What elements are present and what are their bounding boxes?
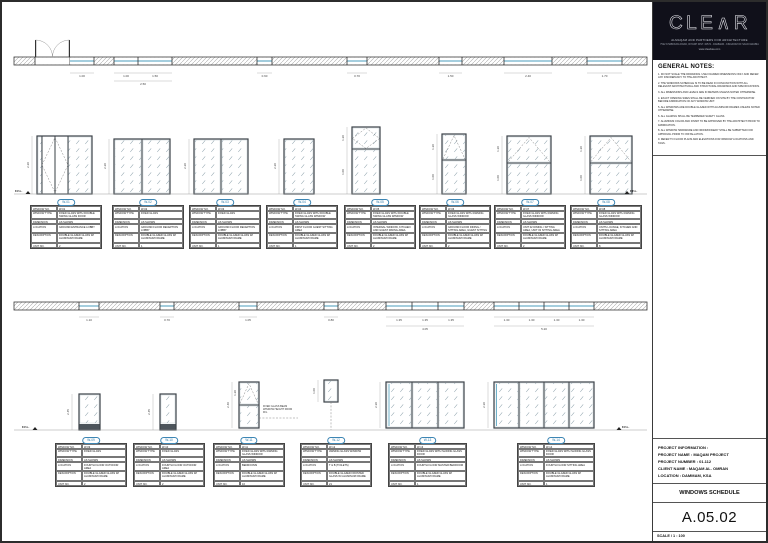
window-tag: W-13 [419,437,437,444]
project-location: LOCATION : DAMMAM, KSA [658,473,761,478]
schedule-row-value: DOUBLE GLAZED GLASS W/ ALUMINUM FRAME [415,471,466,481]
project-name: PROJECT NAME : MAQAM PROJECT [658,452,761,457]
project-info: PROJECT INFORMATION : PROJECT NAME : MAQ… [653,438,766,482]
window-schedule-table: W-04WINDOW NO.W-04WINDOW TYPEFIXED GLASS… [266,205,338,249]
window-schedule-table: W-14WINDOW NO.W-14WINDOW TYPEFIXED GLASS… [517,443,595,487]
schedule-row-value: FOURTH FLOOR OUTDOOR AREA [82,462,126,471]
schedule-row-value: DOUBLE GLAZED GLASS W/ ALUMINUM FRAME [57,233,101,243]
schedule-row-value: FIXED GLASS WITH DOUBLE SWING GLASS WIND… [371,211,415,220]
schedule-row-label: WINDOW TYPE [495,211,521,220]
schedule-row-label: DESCRIPTION [518,471,544,481]
title-block-spacer [653,156,766,438]
schedule-row-value: 1 [415,481,466,486]
general-note: 1. DO NOT SCALE THE DRAWINGS. USE FIGURE… [658,73,761,80]
schedule-row-label: LOCATION [267,224,293,233]
schedule-row-value: FOURTH FLOOR OUTDOOR AREA [160,462,204,471]
general-note: 3. ALL DIMENSIONS AND LEVELS ARE IN METE… [658,91,761,94]
schedule-row-value: FIXED GLASS [216,211,260,220]
schedule-row-label: DESCRIPTION [301,471,327,481]
schedule-row-value: 2 [160,481,204,486]
window-tag: W-14 [547,437,565,444]
firm-name: ALMAQAM AND PARTNERS FOR ARCHITECTURE [671,38,748,42]
schedule-row-label: DESCRIPTION [134,471,160,481]
schedule-row-label: DESCRIPTION [345,233,371,243]
window-schedule-table: W-13WINDOW NO.W-13WINDOW TYPEFIXED GLASS… [388,443,467,487]
schedule-row-value: UNITS LOUNGE, KITCHEN AND SITTING AREA [597,224,641,233]
schedule-row-value: 2 [371,243,415,248]
schedule-row-label: DESCRIPTION [267,233,293,243]
title-block: CLE∧R ALMAQAM AND PARTNERS FOR ARCHITECT… [652,2,766,541]
window-tag: W-01 [57,199,75,206]
general-note: 2. THE WINDOWS SCHEDULE IS TO BE READ IN… [658,82,761,89]
schedule-row-label: DESCRIPTION [56,471,82,481]
schedule-row-label: LOCATION [301,462,327,471]
schedule-row-label: UNIT NO. [267,243,293,248]
window-tag: W-12 [327,437,345,444]
general-notes-heading: GENERAL NOTES: [658,64,761,70]
general-note: 9. REFER TO FLOOR PLANS AND ELEVATIONS F… [658,138,761,145]
schedule-row-value: UNIT 02 DINING / SITTING AREA, UNIT 03 S… [521,224,565,233]
schedule-row-value: 16 [240,481,284,486]
schedule-row-value: DOUBLE GLAZED GLASS W/ ALUMINUM FRAME [293,233,337,243]
schedule-row-value: FIXED GLASS WITH DOUBLE SWING GLASS DOOR [57,211,101,220]
schedule-row-label: LOCATION [214,462,240,471]
firm-address: 7522 KHABOURA ROAD, RIYADH DIST. 32574 -… [660,43,759,46]
schedule-row-value: 2 [82,481,126,486]
schedule-row-label: DESCRIPTION [214,471,240,481]
window-tag: W-11 [240,437,257,444]
schedule-row-value: DOUBLE GLAZED GLASS W/ ALUMINUM FRAME [446,233,490,243]
schedule-row-label: WINDOW TYPE [134,449,160,458]
schedule-row-label: UNIT NO. [301,481,327,486]
window-tag: W-05 [371,199,389,206]
schedule-row-value: FIXED GLASS [82,449,126,458]
schedule-row-label: UNIT NO. [113,243,139,248]
schedule-row-label: WINDOW TYPE [113,211,139,220]
window-schedule-table: W-10WINDOW NO.W-10WINDOW TYPEFIXED GLASS… [133,443,205,487]
window-tag: W-07 [521,199,539,206]
window-tag: W-10 [160,437,178,444]
schedule-row-label: DESCRIPTION [389,471,415,481]
general-note: 6. ALL GLAZING SHALL BE TEMPERED SAFETY … [658,115,761,118]
schedule-row-value: 2 [57,243,101,248]
window-schedule-table: W-12WINDOW NO.W-12WINDOW TYPEAWNING GLAS… [300,443,372,487]
schedule-row-value: FIRST FLOOR GUEST SITTING AREA [293,224,337,233]
schedule-row-label: LOCATION [134,462,160,471]
schedule-row-value: 1 [544,481,594,486]
schedule-row-value: GROUND ENTRANCE LOBBY [57,224,101,233]
schedule-row-label: UNIT NO. [518,481,544,486]
schedule-row-value: DOUBLE GLAZED GLASS W/ ALUMINUM FRAME [371,233,415,243]
general-note: 4. EXACT OPENING SIZES SHALL BE VERIFIED… [658,97,761,104]
window-tag: W-08 [597,199,615,206]
schedule-row-label: WINDOW TYPE [571,211,597,220]
schedule-row-value: 1 [139,243,183,248]
firm-website: www.clearksa.com [699,48,720,51]
svg-text:CLE∧R: CLE∧R [668,13,750,34]
project-info-heading: PROJECT INFORMATION : [658,445,761,450]
window-tag: W-03 [216,199,234,206]
schedule-row-value: FIXED GLASS WITH AWNING GLASS WINDOW [240,449,284,458]
schedule-row-label: UNIT NO. [571,243,597,248]
window-schedule-table: W-02WINDOW NO.W-02WINDOW TYPEFIXED GLASS… [112,205,184,249]
schedule-row-value: DOUBLE GLAZED FROSTED GLASS W/ ALUMINUM … [327,471,371,481]
schedule-row-label: UNIT NO. [134,481,160,486]
schedule-row-value: 21 [327,481,371,486]
schedule-row-label: WINDOW TYPE [190,211,216,220]
schedule-row-label: LOCATION [190,224,216,233]
client-name: CLIENT NAME : MAQAM AL. OMRAN [658,466,761,471]
schedule-row-value: 2 [521,243,565,248]
schedule-row-label: WINDOW TYPE [267,211,293,220]
schedule-row-label: UNIT NO. [56,481,82,486]
schedule-row-label: DESCRIPTION [571,233,597,243]
window-schedule-table: W-08WINDOW NO.W-08WINDOW TYPEFIXED GLASS… [570,205,642,249]
schedule-row-value: FIXED GLASS WITH AWNING GLASS WINDOW [521,211,565,220]
general-note: 8. ALL WINDOW HARDWARE AND IRONMONGERY S… [658,129,761,136]
schedule-row-label: DESCRIPTION [420,233,446,243]
window-schedule-table: W-01WINDOW NO.W-01WINDOW TYPEFIXED GLASS… [30,205,102,249]
project-number: PROJECT NUMBER : 01.112 [658,459,761,464]
schedule-row-value: FIXED GLASS [139,211,183,220]
schedule-row-value: FIXED GLASS WITH SLIDING GLASS DOOR [544,449,594,458]
schedule-row-label: LOCATION [56,462,82,471]
schedule-row-label: DESCRIPTION [190,233,216,243]
schedule-row-value: GROUND FLOOR RECEPTION LOBBY [139,224,183,233]
schedule-row-label: UNIT NO. [389,481,415,486]
schedule-row-value: DOUBLE GLAZED GLASS W/ ALUMINUM FRAME [544,471,594,481]
window-tag: W-09 [82,437,100,444]
schedule-row-value: GROUND FLOOR RECEPTION LOBBY [216,224,260,233]
schedule-row-label: LOCATION [518,462,544,471]
window-schedule-table: W-05WINDOW NO.W-05WINDOW TYPEFIXED GLASS… [344,205,416,249]
schedule-row-value: FIXED GLASS WITH AWNING GLASS WINDOW [446,211,490,220]
schedule-row-label: DESCRIPTION [495,233,521,243]
schedule-row-label: LOCATION [389,462,415,471]
schedule-row-value: FIXED GLASS [160,449,204,458]
window-tag: W-06 [446,199,464,206]
schedule-row-value: FIXED GLASS WITH DOUBLE SWING GLASS WIND… [293,211,337,220]
general-notes: GENERAL NOTES: 1. DO NOT SCALE THE DRAWI… [653,60,766,156]
schedule-row-value: AWNING GLASS WINDOW [327,449,371,458]
schedule-row-value: DOUBLE GLAZED GLASS W/ ALUMINUM FRAME [160,471,204,481]
schedule-row-value: GROUND FLOOR DINING / SITTING AREA, GUES… [446,224,490,233]
schedule-row-value: DOUBLE GLAZED GLASS W/ ALUMINUM FRAME [216,233,260,243]
schedule-row-value: FOURTH FLOOR MASTER BEDROOM [415,462,466,471]
schedule-row-label: LOCATION [420,224,446,233]
window-schedule-table: W-03WINDOW NO.W-03WINDOW TYPEFIXED GLASS… [189,205,261,249]
window-schedule-table: W-11WINDOW NO.W-11WINDOW TYPEFIXED GLASS… [213,443,285,487]
schedule-row-label: UNIT NO. [31,243,57,248]
schedule-row-label: UNIT NO. [345,243,371,248]
schedule-row-value: DOUBLE GLAZED GLASS W/ ALUMINUM FRAME [240,471,284,481]
schedule-row-label: WINDOW TYPE [31,211,57,220]
schedule-row-value: FIXED GLASS WITH AWNING GLASS WINDOW [597,211,641,220]
schedule-row-value: DOUBLE GLAZED GLASS W/ ALUMINUM FRAME [139,233,183,243]
window-schedule-table: W-07WINDOW NO.W-07WINDOW TYPEFIXED GLASS… [494,205,566,249]
schedule-row-label: LOCATION [571,224,597,233]
general-note: 5. ALL WINDOWS ARE DOUBLE GLAZED WITH AL… [658,106,761,113]
schedule-row-value: 8 [597,243,641,248]
schedule-row-label: UNIT NO. [190,243,216,248]
schedule-row-label: UNIT NO. [495,243,521,248]
logo-box: CLE∧R ALMAQAM AND PARTNERS FOR ARCHITECT… [653,2,766,60]
schedule-row-label: LOCATION [113,224,139,233]
clear-logo: CLE∧R [658,11,762,35]
schedule-row-value: DOUBLE GLAZED GLASS W/ ALUMINUM FRAME [82,471,126,481]
schedule-row-label: WINDOW TYPE [389,449,415,458]
general-note: 7. ALUMINUM COLOR AND FINISH TO BE APPRO… [658,120,761,127]
schedule-row-label: WINDOW TYPE [420,211,446,220]
schedule-row-value: 1 [293,243,337,248]
schedule-row-value: DOUBLE GLAZED GLASS W/ ALUMINUM FRAME [597,233,641,243]
schedule-row-value: 1 [216,243,260,248]
schedule-row-value: 2 [446,243,490,248]
window-tag: W-04 [293,199,311,206]
sheet-title: WINDOWS SCHEDULE [653,483,766,502]
schedule-row-value: DOUBLE GLAZED GLASS W/ ALUMINUM FRAME [521,233,565,243]
schedule-row-value: BEDROOMS [240,462,284,471]
schedule-row-label: WINDOW TYPE [214,449,240,458]
drawing-sheet: 1.00 1.00 1.50 2.50 0.60 0.70 1.50 2.40 … [0,0,768,543]
window-tag: W-02 [139,199,157,206]
schedule-row-label: DESCRIPTION [31,233,57,243]
schedule-row-value: INTERNAL WINDOW, KITCHEN AND GUEST DININ… [371,224,415,233]
schedule-row-value: FIXED GLASS WITH SLIDING GLASS DOOR [415,449,466,458]
window-schedule-table: W-06WINDOW NO.W-06WINDOW TYPEFIXED GLASS… [419,205,491,249]
window-schedule-table: W-09WINDOW NO.W-09WINDOW TYPEFIXED GLASS… [55,443,127,487]
sheet-number: A.05.02 [653,502,766,531]
schedule-row-label: UNIT NO. [420,243,446,248]
schedule-row-label: WINDOW TYPE [518,449,544,458]
sheet-scale: SCALE / 1 : 100 [653,531,766,542]
schedule-row-label: WINDOW TYPE [301,449,327,458]
schedule-row-label: LOCATION [345,224,371,233]
schedule-row-value: T & B (TOILETS) [327,462,371,471]
schedule-row-label: LOCATION [31,224,57,233]
schedule-row-label: DESCRIPTION [113,233,139,243]
schedule-row-label: LOCATION [495,224,521,233]
schedule-row-label: WINDOW TYPE [345,211,371,220]
schedule-row-label: WINDOW TYPE [56,449,82,458]
schedule-row-value: FOURTH FLOOR SITTING AREA [544,462,594,471]
schedule-row-label: UNIT NO. [214,481,240,486]
